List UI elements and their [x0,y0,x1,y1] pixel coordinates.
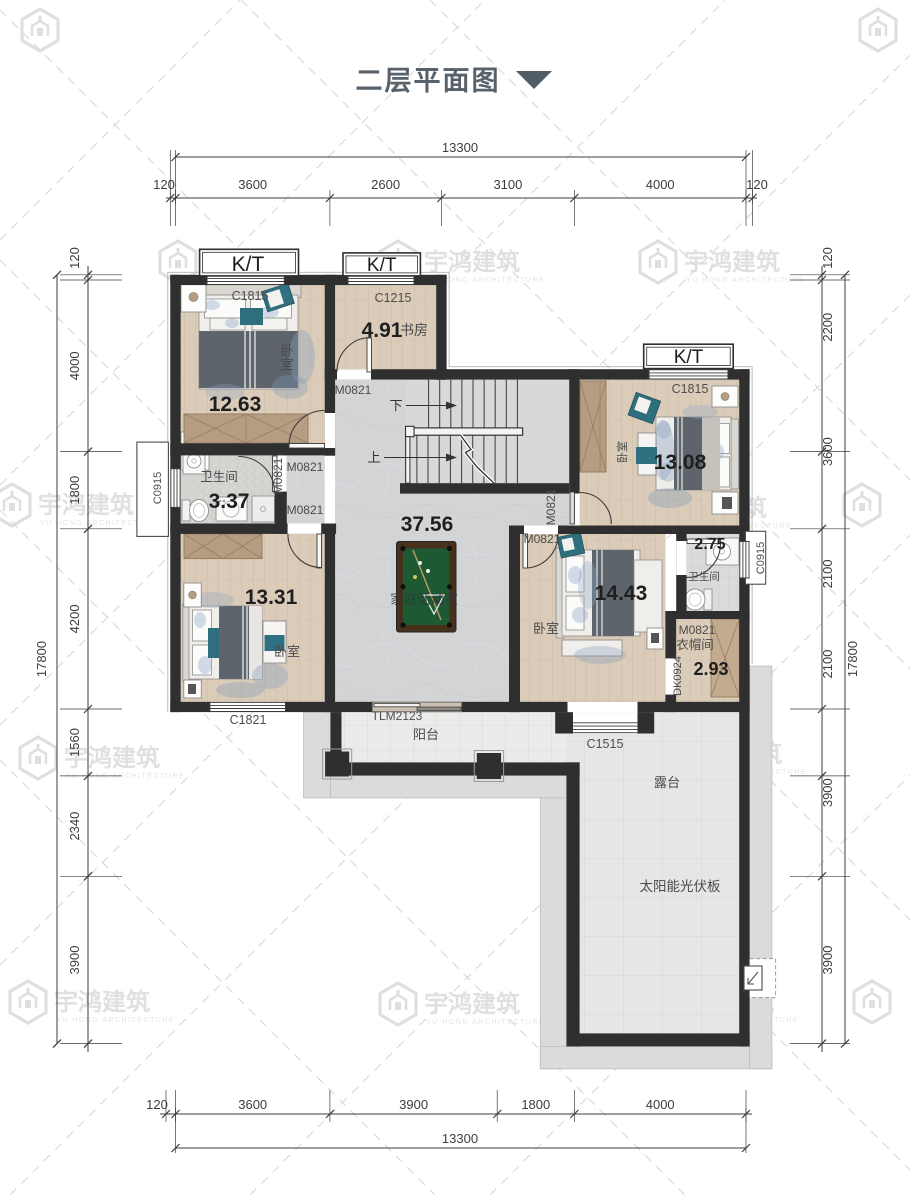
svg-text:太阳能光伏板: 太阳能光伏板 [640,879,721,894]
svg-text:TLM2123: TLM2123 [372,709,423,723]
svg-text:M0821: M0821 [287,503,324,517]
svg-text:卧: 卧 [280,343,293,358]
svg-text:2.75: 2.75 [694,536,725,553]
svg-text:卫生间: 卫生间 [200,470,238,484]
svg-text:3900: 3900 [820,946,835,975]
svg-text:2100: 2100 [820,650,835,679]
svg-text:C0915: C0915 [755,542,767,574]
svg-text:3100: 3100 [493,177,522,192]
svg-text:C1515: C1515 [587,737,624,751]
svg-text:家庭活动室: 家庭活动室 [390,591,458,607]
svg-text:卧室: 卧室 [533,621,559,636]
svg-text:37.56: 37.56 [401,513,454,536]
svg-text:3.37: 3.37 [209,490,250,513]
svg-text:C1215: C1215 [375,291,412,305]
svg-text:书房: 书房 [400,322,428,338]
svg-text:C1815: C1815 [672,382,709,396]
svg-text:C0915: C0915 [152,472,164,504]
svg-text:M0821: M0821 [524,532,561,546]
svg-text:C1821: C1821 [230,713,267,727]
svg-text:2.93: 2.93 [693,659,728,679]
svg-text:14.43: 14.43 [595,582,648,605]
svg-text:4000: 4000 [646,177,675,192]
svg-text:M0821: M0821 [287,460,324,474]
svg-text:1800: 1800 [521,1097,550,1112]
svg-text:衣帽间: 衣帽间 [676,637,714,652]
svg-text:120: 120 [820,247,835,269]
svg-text:4000: 4000 [646,1097,675,1112]
svg-text:K/T: K/T [367,255,397,276]
svg-text:M0821: M0821 [271,457,285,494]
svg-text:120: 120 [67,247,82,269]
svg-text:13.31: 13.31 [245,586,298,609]
svg-text:3900: 3900 [399,1097,428,1112]
svg-text:13300: 13300 [442,1131,478,1146]
svg-text:3600: 3600 [238,177,267,192]
svg-text:120: 120 [746,177,768,192]
svg-text:4200: 4200 [67,604,82,633]
svg-text:3900: 3900 [67,946,82,975]
svg-text:1560: 1560 [67,728,82,757]
svg-text:17800: 17800 [845,641,860,677]
svg-text:12.63: 12.63 [209,393,262,416]
svg-text:C1815: C1815 [232,289,269,303]
svg-text:120: 120 [146,1097,168,1112]
svg-text:3900: 3900 [820,778,835,807]
svg-text:M0821: M0821 [544,488,558,525]
svg-text:2100: 2100 [820,559,835,588]
svg-text:M0821: M0821 [335,383,372,397]
svg-text:卫生间: 卫生间 [688,570,720,583]
svg-text:露台: 露台 [654,775,680,790]
svg-text:4.91: 4.91 [362,319,403,342]
svg-text:M0821: M0821 [679,623,716,637]
svg-text:2600: 2600 [371,177,400,192]
svg-text:K/T: K/T [232,253,265,276]
svg-text:120: 120 [153,177,175,192]
svg-text:阳台: 阳台 [413,727,439,742]
svg-text:1800: 1800 [67,476,82,505]
svg-text:室: 室 [280,357,293,372]
svg-text:K/T: K/T [674,347,704,368]
svg-text:13300: 13300 [442,140,478,155]
svg-text:13.08: 13.08 [654,451,707,474]
svg-text:下: 下 [389,398,402,413]
svg-text:4000: 4000 [67,351,82,380]
svg-text:3600: 3600 [238,1097,267,1112]
svg-text:卧室: 卧室 [615,441,629,463]
svg-text:上: 上 [367,450,380,465]
svg-text:二层平面图: 二层平面图 [356,66,501,96]
svg-text:2340: 2340 [67,812,82,841]
svg-text:卧室: 卧室 [274,644,300,659]
svg-text:DK0924: DK0924 [672,656,684,696]
svg-text:17800: 17800 [34,641,49,677]
svg-text:2200: 2200 [820,313,835,342]
